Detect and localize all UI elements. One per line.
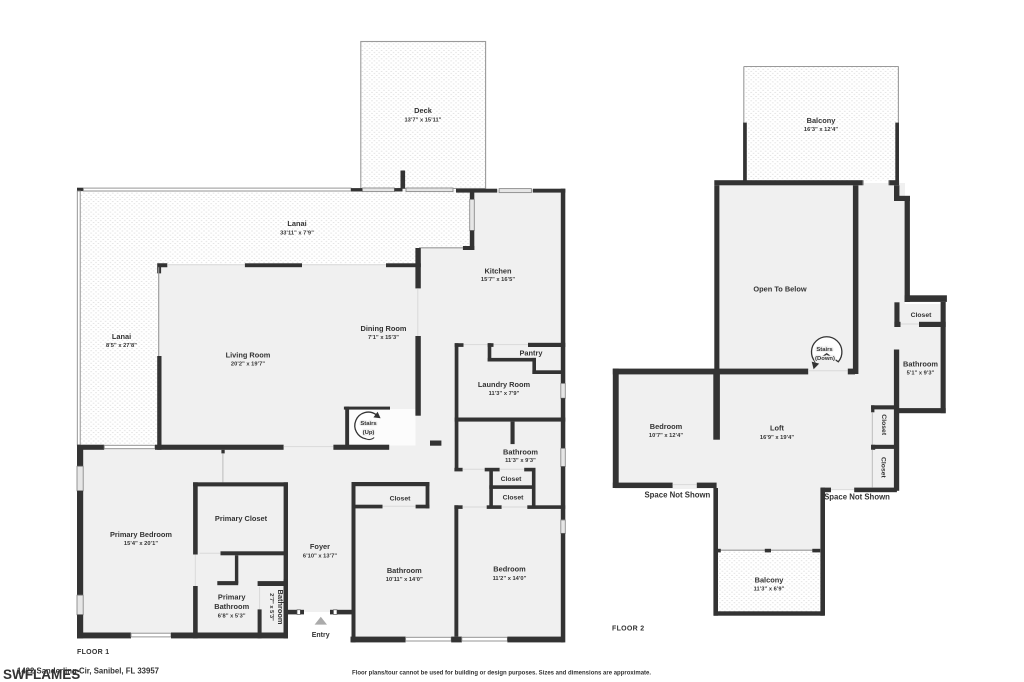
svg-text:Lanai: Lanai — [112, 332, 131, 341]
svg-text:15’7” x 16’5”: 15’7” x 16’5” — [481, 277, 515, 283]
svg-text:Living Room: Living Room — [226, 351, 271, 360]
svg-text:Space Not Shown: Space Not Shown — [644, 491, 710, 500]
svg-text:10’11” x 14’0”: 10’11” x 14’0” — [386, 577, 423, 583]
svg-text:7’1” x 15’3”: 7’1” x 15’3” — [368, 335, 399, 341]
svg-text:FLOOR 2: FLOOR 2 — [612, 626, 644, 633]
svg-text:16’9” x 19’4”: 16’9” x 19’4” — [760, 435, 794, 441]
svg-text:Bathroom: Bathroom — [214, 602, 249, 611]
svg-text:(Up): (Up) — [363, 430, 375, 436]
svg-text:Laundry Room: Laundry Room — [478, 380, 531, 389]
svg-text:Entry: Entry — [312, 632, 330, 639]
svg-text:Balcony: Balcony — [807, 116, 837, 125]
svg-text:Lanai: Lanai — [287, 219, 306, 228]
svg-text:11’3” x 9’3”: 11’3” x 9’3” — [505, 458, 536, 464]
svg-text:Closet: Closet — [880, 414, 887, 436]
svg-text:Closet: Closet — [390, 495, 412, 502]
svg-text:15’4” x 20’1”: 15’4” x 20’1” — [124, 541, 158, 547]
svg-text:Floor plans/tour cannot be use: Floor plans/tour cannot be used for buil… — [352, 671, 651, 677]
svg-text:Foyer: Foyer — [310, 542, 330, 551]
svg-text:Closet: Closet — [503, 495, 525, 502]
svg-text:Loft: Loft — [770, 424, 784, 433]
svg-text:5’1” x 9’3”: 5’1” x 9’3” — [907, 370, 935, 376]
svg-text:Bathroom: Bathroom — [903, 360, 938, 369]
svg-text:11’3” x 6’9”: 11’3” x 6’9” — [754, 586, 785, 592]
svg-text:Bathroom: Bathroom — [276, 590, 285, 625]
svg-text:11’3” x 7’9”: 11’3” x 7’9” — [489, 391, 520, 397]
svg-text:13’7” x 15’11”: 13’7” x 15’11” — [405, 118, 442, 124]
svg-text:FLOOR 1: FLOOR 1 — [77, 649, 109, 656]
svg-text:Dining Room: Dining Room — [361, 324, 407, 333]
svg-text:Closet: Closet — [911, 312, 933, 319]
svg-text:Primary Bedroom: Primary Bedroom — [110, 530, 172, 539]
svg-text:Bedroom: Bedroom — [650, 422, 683, 431]
svg-text:20’2” x 19’7”: 20’2” x 19’7” — [231, 362, 265, 368]
svg-text:Bathroom: Bathroom — [503, 447, 538, 456]
svg-text:8’5” x 27’8”: 8’5” x 27’8” — [106, 343, 137, 349]
svg-text:Space Not Shown: Space Not Shown — [824, 493, 890, 502]
svg-text:Balcony: Balcony — [755, 575, 785, 584]
svg-text:Closet: Closet — [880, 457, 887, 479]
svg-text:6’8” x 5’3”: 6’8” x 5’3” — [218, 614, 246, 620]
svg-text:11’2” x 14’0”: 11’2” x 14’0” — [493, 576, 527, 582]
svg-text:Closet: Closet — [501, 476, 523, 483]
svg-text:Primary Closet: Primary Closet — [215, 514, 268, 523]
svg-text:Open To Below: Open To Below — [753, 285, 806, 294]
svg-text:Deck: Deck — [414, 106, 433, 115]
svg-text:Primary: Primary — [218, 593, 246, 602]
svg-text:6’10” x 13’7”: 6’10” x 13’7” — [303, 554, 337, 560]
svg-text:33’11” x 7’9”: 33’11” x 7’9” — [280, 231, 314, 237]
svg-text:Kitchen: Kitchen — [484, 267, 512, 276]
svg-text:(Down): (Down) — [815, 356, 835, 362]
svg-text:16’3” x 12’4”: 16’3” x 12’4” — [804, 127, 838, 133]
svg-text:1422 Sanderling Cir, Sanibel,: 1422 Sanderling Cir, Sanibel, FL 33957 — [17, 667, 159, 676]
svg-text:10’7” x 12’4”: 10’7” x 12’4” — [649, 433, 683, 439]
svg-text:2’7” x 5’3”: 2’7” x 5’3” — [268, 593, 274, 621]
svg-text:Bedroom: Bedroom — [493, 565, 526, 574]
svg-text:Stairs: Stairs — [816, 347, 833, 353]
svg-text:Stairs: Stairs — [360, 421, 377, 427]
svg-text:Bathroom: Bathroom — [387, 566, 422, 575]
svg-text:Pantry: Pantry — [519, 349, 543, 358]
